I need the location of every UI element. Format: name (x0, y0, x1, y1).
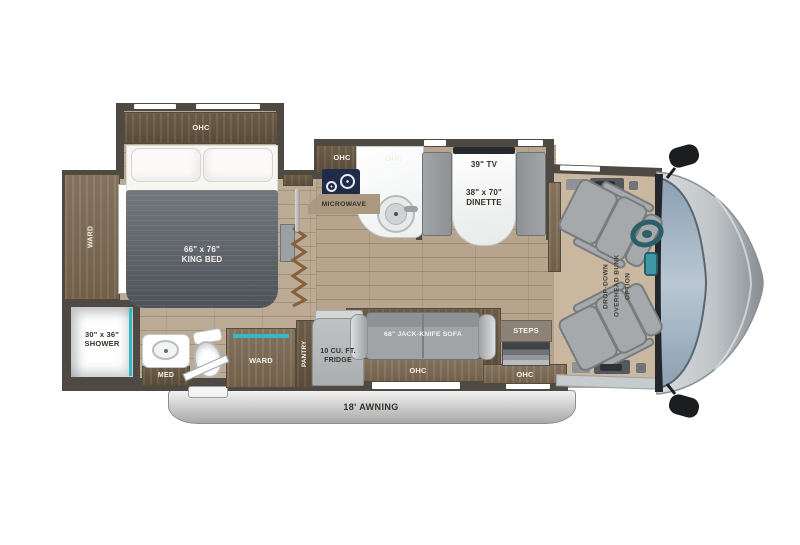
hall-wardrobe-accent (233, 334, 289, 338)
bed-slide-window-right (196, 104, 260, 109)
cooktop-burner-small (326, 181, 337, 192)
kitchen-ohc-left-label: OHC (320, 153, 364, 162)
dinette-window-left (424, 140, 446, 146)
bath-sink-drain (164, 349, 168, 353)
dash-top-knob (629, 181, 638, 190)
rv-floorplan: 18' AWNING WARD OHC 66" x 76" KING BED 3… (0, 0, 800, 545)
kitchen-ohc-right-label: OHC (372, 154, 416, 163)
bedroom-tv-cabinet (283, 174, 313, 186)
bed-slide-wall-left (116, 104, 124, 179)
front-cap (645, 138, 771, 424)
dinette-window-right (518, 140, 543, 146)
steps-label: STEPS (500, 326, 552, 335)
kitchen-sink-drain (394, 212, 398, 216)
kitchen-faucet (404, 206, 418, 212)
dinette-bench-right (516, 152, 546, 236)
dinette-bench-left (422, 152, 452, 236)
dash-bottom-screen (600, 364, 622, 371)
hall-wardrobe-label: WARD (226, 356, 296, 365)
shower-label: 30" x 36" SHOWER (71, 330, 133, 349)
sofa-window (372, 382, 460, 389)
entry-steps (502, 342, 550, 366)
bedroom-wardrobe-label: WARD (64, 174, 120, 300)
bunk-option-label: DROP-DOWN OVERHEAD BUNK OPTION (598, 226, 636, 346)
bed-ohc-label: OHC (124, 123, 278, 132)
sofa-ohc-label: OHC (348, 366, 488, 375)
hall-pole (295, 188, 300, 232)
bed-slide-window-left (134, 104, 176, 109)
sofa-armrest-right (478, 314, 496, 360)
bath-entry-step (188, 386, 228, 398)
fridge-label: 10 CU. FT. FRIDGE (312, 348, 364, 366)
tv-bar (453, 147, 515, 154)
bed-pillow-left (131, 148, 201, 182)
side-mirror-top (667, 142, 701, 178)
bed-pillow-right (203, 148, 273, 182)
center-console (644, 252, 658, 276)
tv-label: 39" TV (452, 160, 516, 170)
hall-ladder-decor (290, 226, 308, 308)
side-mirror-bottom (667, 384, 701, 420)
dinette-label: 38" x 70" DINETTE (452, 188, 516, 208)
awning-label: 18' AWNING (168, 402, 574, 413)
cooktop-burner-large (340, 174, 355, 189)
sofa-label: 68" JACK-KNIFE SOFA (366, 331, 480, 339)
king-bed-label: 66" x 76" KING BED (126, 245, 278, 265)
entry-ohc-label: OHC (492, 370, 558, 379)
steering-hub (642, 230, 652, 238)
med-cabinet-label: MED (142, 372, 190, 381)
microwave-label: MICROWAVE (308, 201, 380, 209)
